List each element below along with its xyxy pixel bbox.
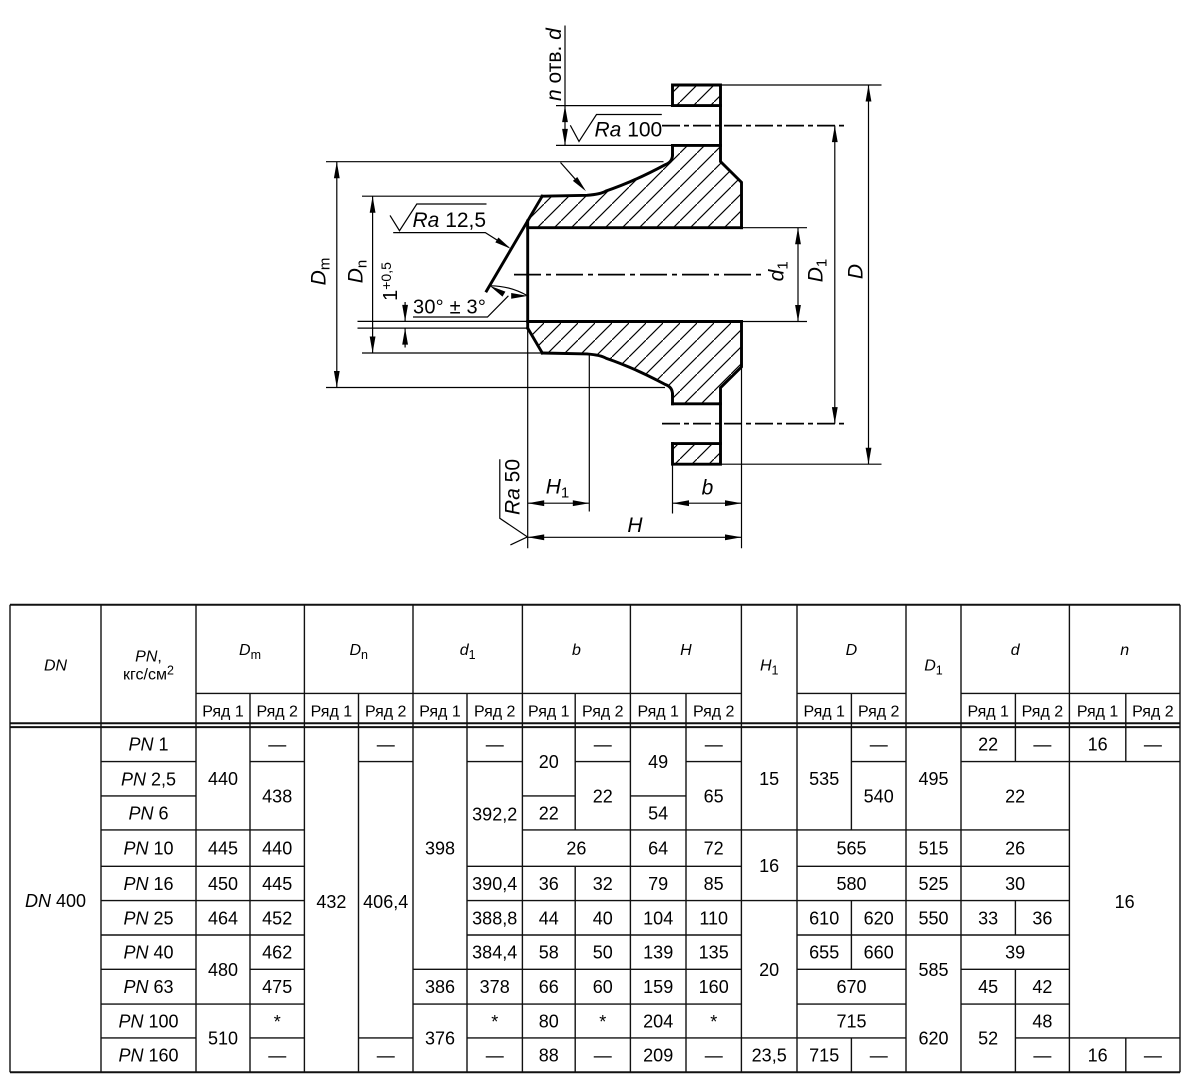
svg-text:Ra 50: Ra 50 xyxy=(502,459,525,515)
svg-text:20: 20 xyxy=(759,960,779,980)
svg-text:58: 58 xyxy=(539,943,559,963)
svg-text:Dm: Dm xyxy=(239,642,261,662)
svg-text:45: 45 xyxy=(978,977,998,997)
svg-text:n отв. d: n отв. d xyxy=(543,27,566,101)
svg-text:204: 204 xyxy=(643,1012,673,1032)
svg-text:—: — xyxy=(1144,735,1162,755)
svg-text:—: — xyxy=(1033,735,1051,755)
svg-text:525: 525 xyxy=(918,874,948,894)
svg-text:Ряд 1: Ряд 1 xyxy=(528,703,570,720)
svg-text:Ряд 1: Ряд 1 xyxy=(637,703,679,720)
svg-text:*: * xyxy=(599,1012,606,1032)
svg-text:—: — xyxy=(268,1046,286,1066)
svg-text:—: — xyxy=(870,1046,888,1066)
svg-text:445: 445 xyxy=(208,839,238,859)
svg-text:PN 25: PN 25 xyxy=(123,908,173,928)
svg-text:16: 16 xyxy=(1088,1046,1108,1066)
svg-text:1+0,5: 1+0,5 xyxy=(378,262,402,301)
svg-text:440: 440 xyxy=(262,839,292,859)
svg-text:480: 480 xyxy=(208,960,238,980)
svg-text:540: 540 xyxy=(864,786,894,806)
svg-text:620: 620 xyxy=(864,908,894,928)
svg-text:d1: d1 xyxy=(766,261,792,281)
svg-text:20: 20 xyxy=(539,752,559,772)
svg-text:715: 715 xyxy=(809,1046,839,1066)
svg-text:H: H xyxy=(627,514,643,537)
svg-text:32: 32 xyxy=(593,874,613,894)
svg-text:40: 40 xyxy=(593,908,613,928)
svg-text:Ra 12,5: Ra 12,5 xyxy=(413,209,487,232)
svg-text:Ra 100: Ra 100 xyxy=(595,119,663,142)
svg-text:Ряд 2: Ряд 2 xyxy=(256,703,298,720)
svg-text:48: 48 xyxy=(1032,1012,1052,1032)
svg-text:80: 80 xyxy=(539,1012,559,1032)
svg-text:кгс/см2: кгс/см2 xyxy=(123,664,174,684)
svg-text:15: 15 xyxy=(759,769,779,789)
svg-text:DN 400: DN 400 xyxy=(25,891,86,911)
svg-text:440: 440 xyxy=(208,769,238,789)
svg-text:—: — xyxy=(486,735,504,755)
svg-text:—: — xyxy=(594,1046,612,1066)
svg-text:—: — xyxy=(705,735,723,755)
svg-text:565: 565 xyxy=(836,839,866,859)
svg-text:620: 620 xyxy=(918,1029,948,1049)
svg-text:50: 50 xyxy=(593,943,613,963)
svg-text:535: 535 xyxy=(809,769,839,789)
svg-text:Ряд 1: Ряд 1 xyxy=(967,703,1009,720)
svg-text:16: 16 xyxy=(1088,735,1108,755)
svg-text:PN 6: PN 6 xyxy=(128,803,168,823)
svg-text:64: 64 xyxy=(648,839,668,859)
svg-text:510: 510 xyxy=(208,1029,238,1049)
svg-text:585: 585 xyxy=(918,960,948,980)
svg-text:139: 139 xyxy=(643,943,673,963)
svg-text:—: — xyxy=(594,735,612,755)
svg-text:—: — xyxy=(268,735,286,755)
svg-text:26: 26 xyxy=(566,839,586,859)
svg-text:Dn: Dn xyxy=(349,642,368,662)
svg-text:475: 475 xyxy=(262,977,292,997)
svg-text:Ряд 2: Ряд 2 xyxy=(582,703,624,720)
svg-text:Ряд 2: Ряд 2 xyxy=(474,703,516,720)
svg-text:390,4: 390,4 xyxy=(472,874,517,894)
svg-text:—: — xyxy=(377,1046,395,1066)
svg-text:Ряд 1: Ряд 1 xyxy=(803,703,845,720)
svg-text:Ряд 2: Ряд 2 xyxy=(1022,703,1064,720)
svg-text:445: 445 xyxy=(262,874,292,894)
svg-text:*: * xyxy=(491,1012,498,1032)
svg-text:104: 104 xyxy=(643,908,673,928)
svg-text:Ряд 2: Ряд 2 xyxy=(858,703,900,720)
svg-text:H1: H1 xyxy=(546,476,570,502)
svg-text:Ряд 2: Ряд 2 xyxy=(365,703,407,720)
svg-text:Ряд 1: Ряд 1 xyxy=(202,703,244,720)
svg-text:36: 36 xyxy=(1032,908,1052,928)
svg-text:30° ± 3°: 30° ± 3° xyxy=(413,296,486,318)
svg-text:PN 40: PN 40 xyxy=(123,943,173,963)
svg-text:—: — xyxy=(1033,1046,1051,1066)
svg-text:432: 432 xyxy=(316,892,346,912)
svg-text:Dm: Dm xyxy=(308,258,334,286)
svg-text:42: 42 xyxy=(1032,977,1052,997)
svg-text:PN 2,5: PN 2,5 xyxy=(121,769,176,789)
svg-text:655: 655 xyxy=(809,943,839,963)
svg-text:b: b xyxy=(702,477,714,500)
svg-text:23,5: 23,5 xyxy=(752,1046,787,1066)
svg-text:54: 54 xyxy=(648,803,668,823)
svg-text:392,2: 392,2 xyxy=(472,804,517,824)
svg-text:452: 452 xyxy=(262,908,292,928)
svg-text:44: 44 xyxy=(539,908,559,928)
svg-text:H: H xyxy=(680,642,692,659)
svg-text:n: n xyxy=(1120,642,1129,659)
svg-text:52: 52 xyxy=(978,1029,998,1049)
svg-text:66: 66 xyxy=(539,977,559,997)
svg-text:16: 16 xyxy=(759,856,779,876)
svg-text:159: 159 xyxy=(643,977,673,997)
svg-text:D: D xyxy=(845,264,868,279)
svg-text:—: — xyxy=(377,735,395,755)
svg-text:—: — xyxy=(1144,1046,1162,1066)
svg-text:388,8: 388,8 xyxy=(472,908,517,928)
svg-text:PN 63: PN 63 xyxy=(123,977,173,997)
svg-text:—: — xyxy=(705,1046,723,1066)
svg-text:580: 580 xyxy=(836,874,866,894)
svg-text:495: 495 xyxy=(918,769,948,789)
svg-text:670: 670 xyxy=(836,977,866,997)
svg-text:515: 515 xyxy=(918,839,948,859)
svg-text:b: b xyxy=(572,642,581,659)
svg-text:d1: d1 xyxy=(460,642,476,662)
svg-text:39: 39 xyxy=(1005,943,1025,963)
svg-text:398: 398 xyxy=(425,839,455,859)
svg-text:Dn: Dn xyxy=(345,260,371,284)
svg-text:—: — xyxy=(870,735,888,755)
svg-text:384,4: 384,4 xyxy=(472,943,517,963)
svg-text:PN 1: PN 1 xyxy=(128,735,168,755)
svg-text:DN: DN xyxy=(44,658,68,675)
svg-text:D: D xyxy=(846,642,858,659)
svg-text:79: 79 xyxy=(648,874,668,894)
svg-text:438: 438 xyxy=(262,786,292,806)
svg-text:209: 209 xyxy=(643,1046,673,1066)
svg-text:PN,: PN, xyxy=(135,649,162,666)
svg-text:Ряд 1: Ряд 1 xyxy=(419,703,461,720)
svg-text:PN 160: PN 160 xyxy=(118,1046,178,1066)
svg-text:135: 135 xyxy=(699,943,729,963)
svg-text:88: 88 xyxy=(539,1046,559,1066)
svg-text:72: 72 xyxy=(704,839,724,859)
svg-text:386: 386 xyxy=(425,977,455,997)
svg-text:715: 715 xyxy=(836,1012,866,1032)
svg-text:Ряд 2: Ряд 2 xyxy=(693,703,735,720)
svg-text:*: * xyxy=(274,1012,281,1032)
svg-text:660: 660 xyxy=(864,943,894,963)
svg-text:160: 160 xyxy=(699,977,729,997)
svg-text:—: — xyxy=(486,1046,504,1066)
svg-text:30: 30 xyxy=(1005,874,1025,894)
svg-text:462: 462 xyxy=(262,943,292,963)
svg-text:D1: D1 xyxy=(805,259,831,283)
svg-text:450: 450 xyxy=(208,874,238,894)
svg-text:22: 22 xyxy=(539,803,559,823)
svg-text:22: 22 xyxy=(593,786,613,806)
svg-text:464: 464 xyxy=(208,908,238,928)
svg-text:65: 65 xyxy=(704,786,724,806)
svg-text:49: 49 xyxy=(648,752,668,772)
svg-text:Ряд 1: Ряд 1 xyxy=(1077,703,1119,720)
svg-text:16: 16 xyxy=(1115,892,1135,912)
svg-text:22: 22 xyxy=(1005,786,1025,806)
svg-text:610: 610 xyxy=(809,908,839,928)
svg-text:26: 26 xyxy=(1005,839,1025,859)
svg-text:376: 376 xyxy=(425,1029,455,1049)
svg-text:Ряд 1: Ряд 1 xyxy=(311,703,353,720)
svg-text:Ряд 2: Ряд 2 xyxy=(1132,703,1174,720)
svg-text:*: * xyxy=(710,1012,717,1032)
svg-text:H1: H1 xyxy=(760,658,779,678)
svg-text:PN 10: PN 10 xyxy=(123,839,173,859)
svg-text:85: 85 xyxy=(704,874,724,894)
svg-text:110: 110 xyxy=(699,908,728,928)
svg-text:PN 16: PN 16 xyxy=(123,874,173,894)
svg-text:378: 378 xyxy=(480,977,510,997)
svg-text:406,4: 406,4 xyxy=(363,892,408,912)
svg-text:36: 36 xyxy=(539,874,559,894)
svg-text:60: 60 xyxy=(593,977,613,997)
svg-text:D1: D1 xyxy=(924,658,943,678)
svg-text:PN 100: PN 100 xyxy=(118,1012,178,1032)
svg-text:550: 550 xyxy=(918,908,948,928)
svg-text:22: 22 xyxy=(978,735,998,755)
svg-text:33: 33 xyxy=(978,908,998,928)
svg-text:d: d xyxy=(1011,642,1021,659)
